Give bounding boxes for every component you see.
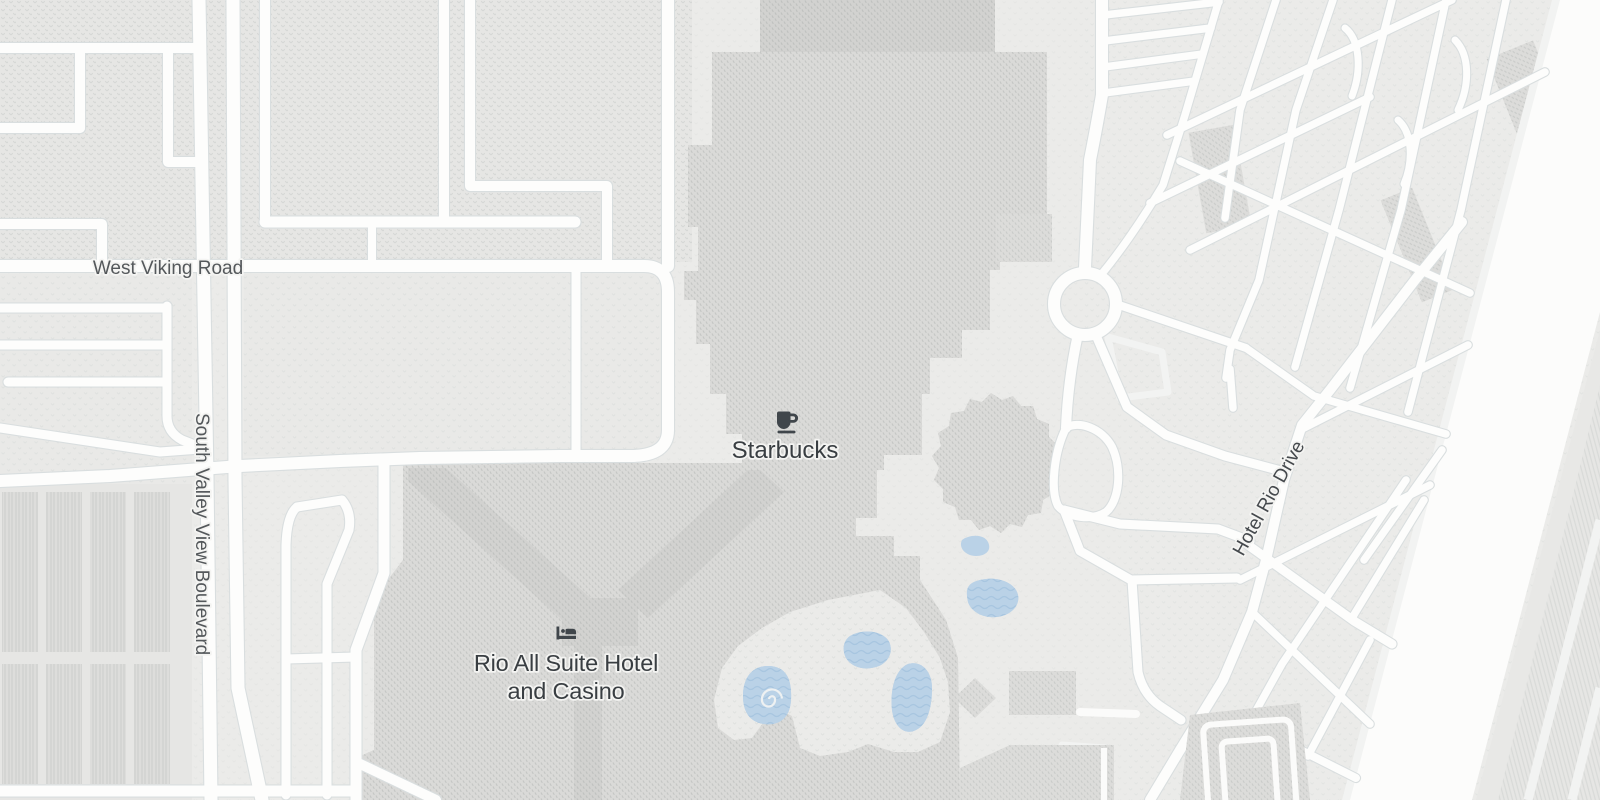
svg-text:South Valley View Boulevard: South Valley View Boulevard [191, 413, 212, 655]
svg-text:Starbucks: Starbucks [732, 437, 839, 464]
svg-text:Rio All Suite Hotel: Rio All Suite Hotel [474, 650, 658, 676]
svg-text:West Viking Road: West Viking Road [93, 258, 243, 279]
svg-text:and Casino: and Casino [508, 678, 625, 704]
